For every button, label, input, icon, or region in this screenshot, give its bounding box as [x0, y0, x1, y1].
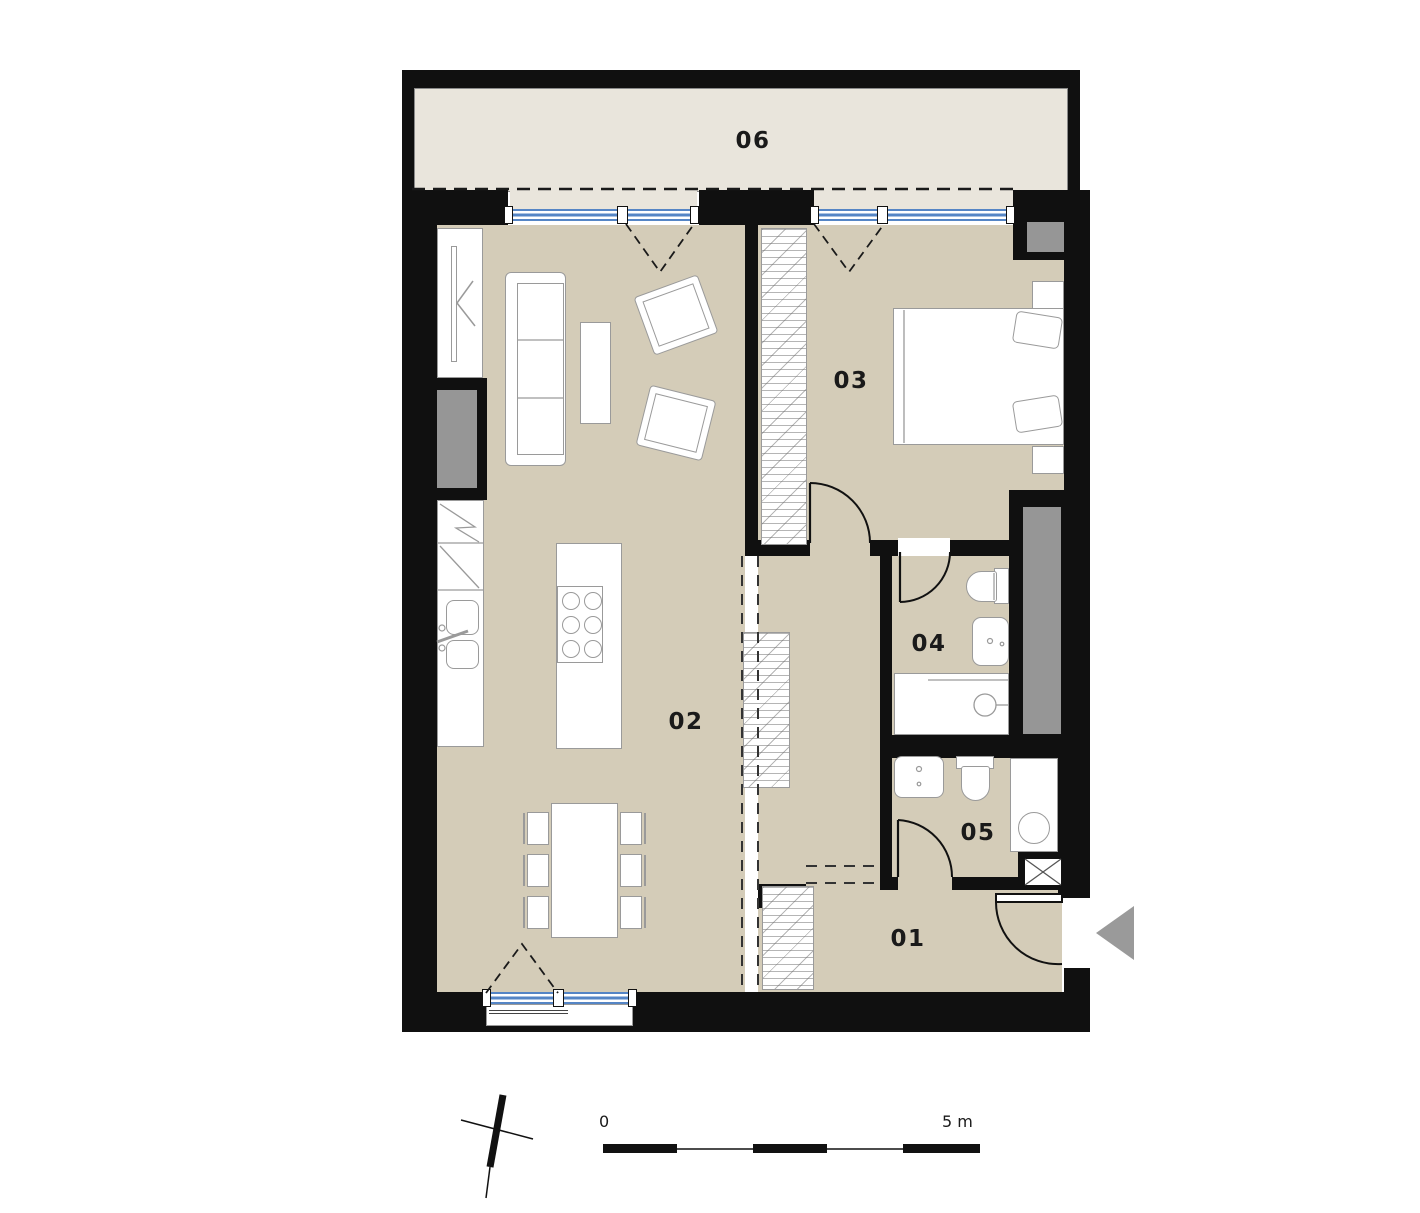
floor-plan: 06 03 02 04 05 01 0 5 m — [0, 0, 1420, 1213]
scale-bar-seg — [603, 1144, 677, 1153]
dining-chair — [620, 812, 642, 845]
armchair-seat — [644, 393, 708, 453]
room-label-03: 03 — [833, 368, 868, 394]
north-arrow-needle — [490, 1095, 503, 1167]
balcony-strip-left — [510, 190, 697, 210]
nightstand — [1032, 446, 1064, 474]
window-jamb — [482, 989, 491, 1007]
cooktop-burner — [562, 640, 580, 658]
window-jamb — [877, 206, 888, 224]
dining-chair — [620, 854, 642, 887]
room-label-06: 06 — [735, 128, 770, 154]
sink-05 — [894, 756, 944, 798]
armchair-seat — [642, 283, 709, 347]
sink-04 — [972, 617, 1009, 666]
bathtub — [894, 673, 1009, 735]
shaft-kitchen — [437, 390, 477, 488]
room-label-02: 02 — [668, 709, 703, 735]
wall-bed-bottom-c — [950, 540, 1013, 556]
scale-bar-seg — [753, 1144, 827, 1153]
cooktop-burner — [562, 592, 580, 610]
room-label-05: 05 — [960, 820, 995, 846]
wall-balcony-right — [1068, 70, 1080, 190]
washing-machine-drum — [1018, 812, 1050, 844]
dining-chair — [527, 854, 549, 887]
threshold-bedroom-door — [810, 540, 870, 556]
wall-04-05 — [880, 735, 1060, 758]
wall-balcony-left — [402, 70, 414, 190]
scale-start-label: 0 — [599, 1112, 609, 1131]
balcony-strip-right — [814, 190, 1015, 210]
toilet-04-bowl — [966, 571, 997, 602]
cooktop-burner — [584, 640, 602, 658]
window-jamb — [617, 206, 628, 224]
scale-bar-seg — [903, 1144, 980, 1153]
toilet-05-bowl — [961, 766, 990, 801]
nightstand — [1032, 281, 1064, 309]
tv-screen — [451, 246, 457, 362]
room-label-04: 04 — [911, 631, 946, 657]
window-jamb — [553, 989, 564, 1007]
north-arrow-tail — [486, 1167, 490, 1198]
wardrobe-corridor — [743, 632, 790, 788]
cooktop-burner — [562, 616, 580, 634]
cooktop-burner — [584, 616, 602, 634]
wall-top — [402, 70, 1080, 88]
window-jamb — [690, 206, 699, 224]
scale-end-label: 5 m — [942, 1112, 973, 1131]
shaft-ne — [1027, 222, 1064, 252]
kitchen-sink-bowl-lower — [446, 640, 479, 669]
entrance-arrow-icon — [1096, 906, 1134, 960]
sofa-seat — [517, 283, 564, 455]
kitchen-sink-bowl-upper — [446, 600, 479, 635]
window-jamb — [1006, 206, 1015, 224]
north-arrow-cross — [461, 1120, 533, 1139]
juliet-railing — [489, 1010, 568, 1014]
threshold-05-door — [898, 877, 952, 890]
dining-chair — [527, 812, 549, 845]
wardrobe-bedroom — [761, 228, 807, 545]
wall-north-b — [699, 190, 814, 225]
window-jamb — [628, 989, 637, 1007]
wall-left — [402, 190, 437, 1032]
window-jamb — [504, 206, 513, 224]
shaft-east — [1023, 507, 1061, 734]
window-living-balcony — [508, 209, 699, 221]
entrance-door-opening — [1062, 898, 1090, 968]
dining-table — [551, 803, 618, 938]
shaft-x-box — [1024, 858, 1062, 886]
cooktop-burner — [584, 592, 602, 610]
window-jamb — [810, 206, 819, 224]
dining-chair — [527, 896, 549, 929]
wall-corridor-east — [880, 540, 892, 890]
room-label-01: 01 — [890, 926, 925, 952]
window-bedroom-balcony — [814, 209, 1015, 221]
coffee-table — [580, 322, 611, 424]
threshold-04-door — [898, 538, 950, 556]
dining-chair — [620, 896, 642, 929]
tv-sideboard — [437, 228, 483, 378]
juliet-balcony — [486, 1004, 633, 1026]
wardrobe-hall — [762, 886, 814, 990]
wall-partition-02-03 — [745, 225, 758, 556]
